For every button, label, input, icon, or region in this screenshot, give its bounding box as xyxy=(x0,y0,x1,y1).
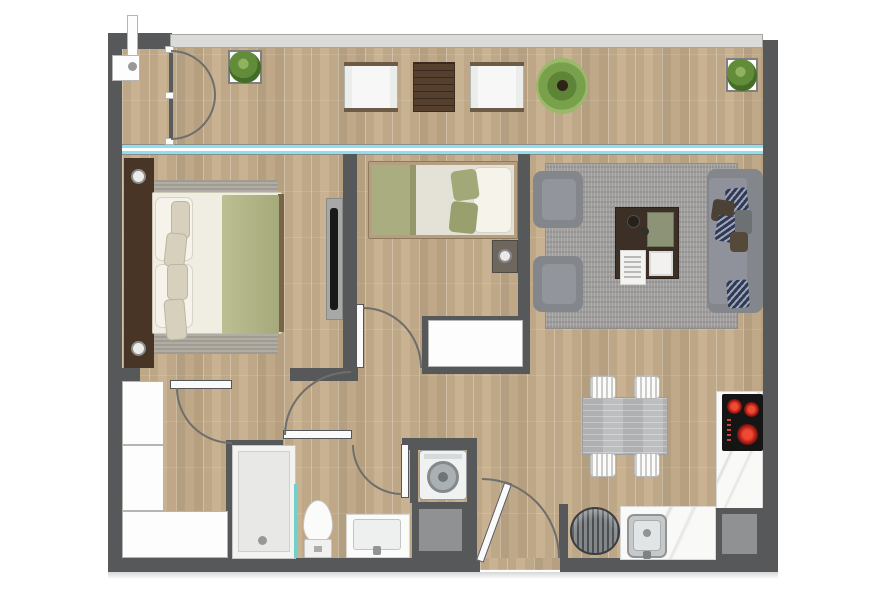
shower-drain xyxy=(258,536,267,545)
master-accent-pillow-3 xyxy=(167,264,188,300)
duct-shaft xyxy=(419,509,462,551)
kitchen-sink-drain xyxy=(643,529,651,537)
armchair-2-cushion xyxy=(542,264,576,304)
lounge-chair-1-frame-bottom xyxy=(344,108,398,112)
laundry-left-wall xyxy=(410,450,418,503)
balcony-parapet xyxy=(170,34,763,48)
bedroom2-blanket-fold xyxy=(410,165,416,235)
master-nightstand-lamp-bottom xyxy=(131,341,146,356)
lounge-chair-2-cushion xyxy=(478,66,516,108)
toilet-flush-button xyxy=(314,546,322,552)
bedroom2-closet xyxy=(428,320,523,367)
window-glass-line xyxy=(122,144,763,155)
bottom-wall-west xyxy=(108,558,480,572)
lounge-chair-1-cushion xyxy=(352,66,390,108)
dining-chair-2 xyxy=(634,376,660,399)
coffee-table-cup-2 xyxy=(640,227,649,236)
shower-glass-panel xyxy=(294,484,297,558)
master-accent-pillow-2 xyxy=(163,232,187,268)
bedroom2-cushion-2 xyxy=(448,201,478,235)
washing-machine-drum-center xyxy=(438,472,448,482)
sofa-pillow-brown-2 xyxy=(730,232,748,252)
vanity-faucet xyxy=(373,546,381,555)
hall-closet-middle xyxy=(122,445,164,511)
master-headboard xyxy=(124,158,154,368)
coffee-table-cup-1 xyxy=(627,215,640,228)
bedroom2-blanket xyxy=(372,165,414,235)
fridge xyxy=(722,514,757,554)
bathroom-door-leaf xyxy=(401,444,409,498)
hall-closet-lower xyxy=(122,511,228,558)
left-wall xyxy=(108,33,122,572)
balcony-side-table xyxy=(413,62,455,112)
master-south-wall-west xyxy=(122,368,140,381)
balcony-plant-2 xyxy=(727,59,757,91)
sofa-side-table xyxy=(735,210,752,234)
cooktop-controls xyxy=(727,419,731,441)
top-left-wall xyxy=(108,33,172,49)
master-tv-screen xyxy=(330,208,338,310)
bedroom-divider-wall xyxy=(343,154,357,372)
sofa-pillow-chevron-3 xyxy=(726,279,750,308)
dining-chair-4 xyxy=(634,453,660,477)
bedroom2-cushion-1 xyxy=(450,168,480,201)
entry-threshold-floor xyxy=(480,558,560,570)
bottom-wall-east xyxy=(560,558,778,572)
right-wall xyxy=(763,40,778,572)
coffee-table-tray xyxy=(649,251,673,276)
balcony-plant-1 xyxy=(229,51,261,83)
lounge-chair-2-frame-bottom xyxy=(470,108,524,112)
hall-closet-upper xyxy=(122,381,164,445)
washing-machine-panel xyxy=(424,454,462,459)
bedroom2-lamp xyxy=(498,249,512,263)
master-nightstand-lamp-top xyxy=(131,169,146,184)
dining-table xyxy=(582,397,668,455)
kitchen-sink-faucet xyxy=(643,551,651,559)
cooktop-burner-small-2 xyxy=(744,402,759,417)
dining-chair-3 xyxy=(590,453,616,477)
kitchen-stub-wall xyxy=(559,504,568,558)
bedroom2-pillow xyxy=(473,167,512,233)
coffee-table-magazine-print xyxy=(624,256,641,278)
toilet-bowl xyxy=(303,500,333,543)
laundry-top-wall xyxy=(402,438,477,450)
water-heater-cylinder xyxy=(570,507,620,555)
plan-drop-shadow xyxy=(108,572,778,579)
balcony-palm-center xyxy=(557,80,568,91)
facade-fixture-dot xyxy=(128,62,137,71)
cooktop-burner-large xyxy=(737,424,758,445)
dining-chair-1 xyxy=(590,376,616,399)
master-accent-pillow-4 xyxy=(163,298,187,341)
cooktop-burner-small-1 xyxy=(727,399,742,414)
master-blanket xyxy=(222,195,279,334)
coffee-table-book-green xyxy=(647,212,674,247)
armchair-1-cushion xyxy=(542,179,576,220)
floor-plan xyxy=(0,0,890,600)
